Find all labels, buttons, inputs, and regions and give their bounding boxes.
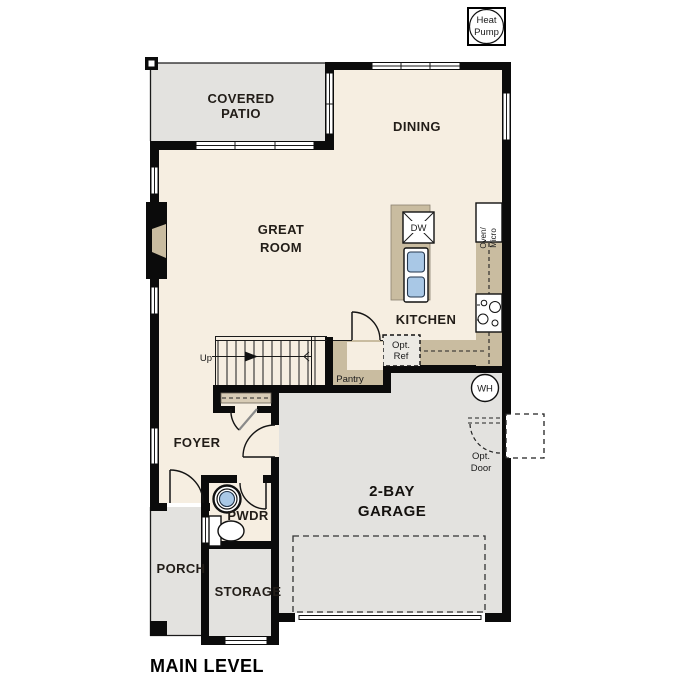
wall-closet-a <box>213 406 235 413</box>
floor-plan-svg: DW Oven/ Micro Opt <box>0 0 687 687</box>
island-sink <box>404 248 428 302</box>
room-label-great-room-1: GREAT <box>258 222 305 237</box>
heat-pump-label-1: Heat <box>476 15 496 26</box>
room-label-covered-patio-1: COVERED <box>207 91 274 106</box>
optional-refrigerator: Opt. Ref <box>383 335 420 366</box>
window-storage <box>225 637 267 645</box>
wall-pantry-left <box>325 337 333 393</box>
room-label-garage-1: 2-BAY <box>369 483 415 500</box>
room-label-dining: DINING <box>393 119 441 134</box>
wall-porch-a <box>150 503 167 511</box>
room-label-porch: PORCH <box>157 561 206 576</box>
opt-door-label-1: Opt. <box>472 451 490 462</box>
opt-ref-label-2: Ref <box>394 351 409 362</box>
stairs-up-label: Up <box>200 353 212 364</box>
dishwasher: DW <box>403 212 434 243</box>
room-label-great-room-2: ROOM <box>260 240 302 255</box>
counter-bottom <box>420 340 476 365</box>
wall-foyer-garage-b <box>271 457 279 645</box>
room-label-foyer: FOYER <box>174 435 221 450</box>
heat-pump-label-2: Pump <box>474 27 499 38</box>
plan-title: MAIN LEVEL <box>150 656 264 676</box>
window-dining-left <box>326 73 333 134</box>
micro-label: Micro <box>489 228 498 248</box>
wall-closet-b <box>257 406 279 413</box>
wall-powder-top-a <box>201 475 237 483</box>
wall-powder-top-b <box>263 475 279 483</box>
water-heater: WH <box>472 375 499 402</box>
room-label-storage: STORAGE <box>215 584 282 599</box>
opt-door-label-2: Door <box>471 463 492 474</box>
fireplace <box>146 202 167 279</box>
cooktop <box>476 294 502 332</box>
room-label-garage-2: GARAGE <box>358 503 426 520</box>
wall-porch-b <box>201 503 210 511</box>
window-patio-slider <box>196 142 314 150</box>
wall-pantry-bottom <box>325 385 391 393</box>
window-foyer <box>151 428 158 464</box>
oven-micro: Oven/ Micro <box>476 203 502 249</box>
room-label-pantry: Pantry <box>336 374 364 385</box>
window-powder <box>202 517 209 543</box>
garage-door <box>295 613 485 622</box>
window-greatroom-lower <box>151 287 158 314</box>
wall-right <box>502 62 511 622</box>
window-dining-top <box>372 63 460 70</box>
water-heater-label: WH <box>477 384 493 395</box>
opt-ref-label-1: Opt. <box>392 340 410 351</box>
window-dining-right <box>503 93 510 140</box>
porch-post <box>150 621 167 636</box>
room-label-kitchen: KITCHEN <box>396 312 457 327</box>
dishwasher-label: DW <box>411 223 427 234</box>
room-label-covered-patio-2: PATIO <box>221 106 261 121</box>
oven-label: Oven/ <box>479 227 488 249</box>
floor-plan-page: DW Oven/ Micro Opt <box>0 0 687 687</box>
heat-pump-badge: Heat Pump <box>468 8 505 45</box>
room-label-powder: PWDR <box>227 508 269 523</box>
window-greatroom-upper <box>151 167 158 194</box>
